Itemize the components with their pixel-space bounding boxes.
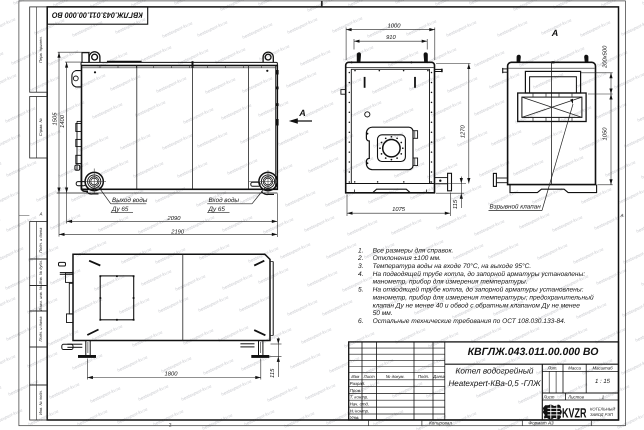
svg-text:Выход воды: Выход воды [112, 197, 148, 204]
svg-text:Лист: Лист [363, 374, 375, 379]
svg-text:№ докум.: № докум. [386, 374, 405, 379]
svg-text:Остальные технические требован: Остальные технические требования по ОСТ … [373, 318, 566, 325]
svg-text:5.: 5. [358, 287, 364, 294]
svg-text:А: А [38, 212, 42, 217]
svg-text:200х500: 200х500 [601, 45, 608, 69]
svg-text:А: А [298, 108, 306, 118]
svg-text:1400: 1400 [59, 114, 66, 128]
svg-text:Разраб.: Разраб. [350, 381, 366, 386]
svg-text:2090: 2090 [167, 215, 182, 222]
svg-text:2: 2 [169, 422, 172, 428]
svg-text:1505: 1505 [51, 112, 58, 126]
svg-text:манометр, прибор для измерения: манометр, прибор для измерения температу… [373, 294, 594, 301]
svg-text:1270: 1270 [459, 124, 466, 138]
svg-text:1075: 1075 [392, 206, 406, 213]
svg-text:манометр, прибор для измерения: манометр, прибор для измерения температу… [373, 279, 528, 286]
svg-text:Нач. отд.: Нач. отд. [350, 401, 369, 406]
svg-text:Масса: Масса [568, 366, 581, 371]
svg-text:ЗАВОД РЭП: ЗАВОД РЭП [590, 412, 613, 417]
svg-text:Н. контр.: Н. контр. [350, 408, 369, 413]
svg-text:Котел водогрейный: Котел водогрейный [456, 366, 534, 375]
svg-text:КВГЛЖ.043.011.00.000 ВО: КВГЛЖ.043.011.00.000 ВО [52, 11, 143, 20]
svg-text:Все размеры для справок.: Все размеры для справок. [373, 247, 454, 254]
svg-text:6.: 6. [358, 318, 364, 325]
svg-text:Дата: Дата [432, 374, 445, 379]
svg-text:Перв. примен.: Перв. примен. [38, 36, 43, 63]
svg-text:Формат А3: Формат А3 [528, 421, 554, 426]
svg-text:2190: 2190 [170, 228, 185, 235]
svg-text:Лит.: Лит. [547, 366, 558, 371]
svg-text:50 мм.: 50 мм. [373, 310, 393, 317]
svg-text:115: 115 [453, 199, 459, 209]
svg-text:Лист: Лист [542, 395, 554, 400]
svg-text:1 : 15: 1 : 15 [595, 378, 611, 385]
svg-text:Листов: Листов [567, 395, 584, 400]
svg-text:2.: 2. [357, 255, 364, 262]
svg-text:Масштаб: Масштаб [592, 366, 613, 371]
svg-text:Взам. инв. №: Взам. инв. № [38, 285, 43, 310]
svg-text:910: 910 [386, 34, 396, 41]
svg-text:1000: 1000 [388, 22, 402, 29]
svg-text:Пров.: Пров. [350, 388, 361, 393]
svg-text:KVZR: KVZR [562, 406, 587, 421]
svg-text:Утв.: Утв. [350, 415, 360, 420]
svg-text:А: А [619, 213, 623, 218]
svg-text:Подп. и дата: Подп. и дата [38, 316, 43, 342]
svg-text:1800: 1800 [165, 370, 179, 377]
svg-text:Подп. и дата: Подп. и дата [38, 227, 43, 253]
svg-text:Взрывной клапан: Взрывной клапан [490, 204, 542, 211]
svg-text:На отводящей трубе котла, до з: На отводящей трубе котла, до запорной ар… [373, 287, 584, 294]
svg-text:Heatexpert-КВа-0,5 -ГЛЖ: Heatexpert-КВа-0,5 -ГЛЖ [449, 379, 541, 388]
svg-text:Ду 65: Ду 65 [111, 206, 129, 213]
svg-text:Вход воды: Вход воды [209, 197, 240, 204]
svg-text:Инв. № дубл.: Инв. № дубл. [38, 260, 43, 285]
svg-text:Температура воды на входе 70°С: Температура воды на входе 70°С, на выход… [373, 263, 532, 270]
svg-text:Инв. № подл.: Инв. № подл. [38, 390, 43, 415]
svg-text:Копировал: Копировал [429, 421, 452, 426]
svg-text:А: А [551, 28, 559, 38]
svg-text:Изм: Изм [351, 374, 359, 379]
svg-text:115: 115 [270, 368, 276, 378]
svg-text:4.: 4. [358, 271, 364, 278]
svg-text:1.: 1. [358, 247, 364, 254]
svg-text:КВГЛЖ.043.011.00.000 ВО: КВГЛЖ.043.011.00.000 ВО [468, 346, 599, 358]
svg-text:1050: 1050 [602, 127, 609, 141]
svg-text:3.: 3. [358, 263, 364, 270]
svg-text:Подп.: Подп. [418, 374, 429, 379]
svg-text:Отклонения ±100 мм.: Отклонения ±100 мм. [373, 255, 442, 262]
svg-text:Справ. №: Справ. № [38, 117, 43, 136]
svg-text:На подводящей трубе котла, до: На подводящей трубе котла, до запорной а… [373, 271, 586, 278]
svg-text:Т. контр.: Т. контр. [350, 395, 369, 400]
svg-text:КОТЕЛЬНЫЙ: КОТЕЛЬНЫЙ [590, 406, 615, 411]
svg-text:клапан Ду не менее 40 и обвод: клапан Ду не менее 40 и обвод с обратным… [373, 302, 581, 309]
svg-text:Ду 65: Ду 65 [208, 206, 226, 213]
